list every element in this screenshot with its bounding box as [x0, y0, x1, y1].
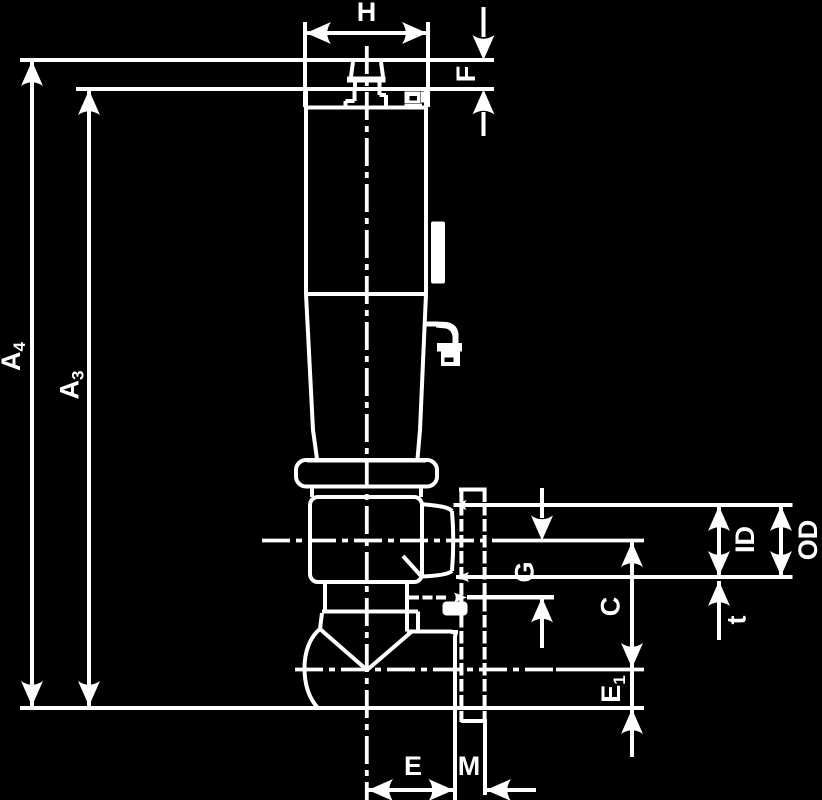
svg-text:F: F	[451, 66, 481, 83]
svg-text:H: H	[357, 0, 377, 27]
svg-text:E: E	[404, 751, 422, 781]
svg-text:ID: ID	[730, 526, 760, 553]
svg-text:C: C	[596, 597, 626, 617]
svg-text:t: t	[722, 616, 752, 625]
svg-text:OD: OD	[793, 520, 822, 561]
svg-text:G: G	[510, 561, 540, 582]
svg-text:M: M	[458, 751, 481, 781]
